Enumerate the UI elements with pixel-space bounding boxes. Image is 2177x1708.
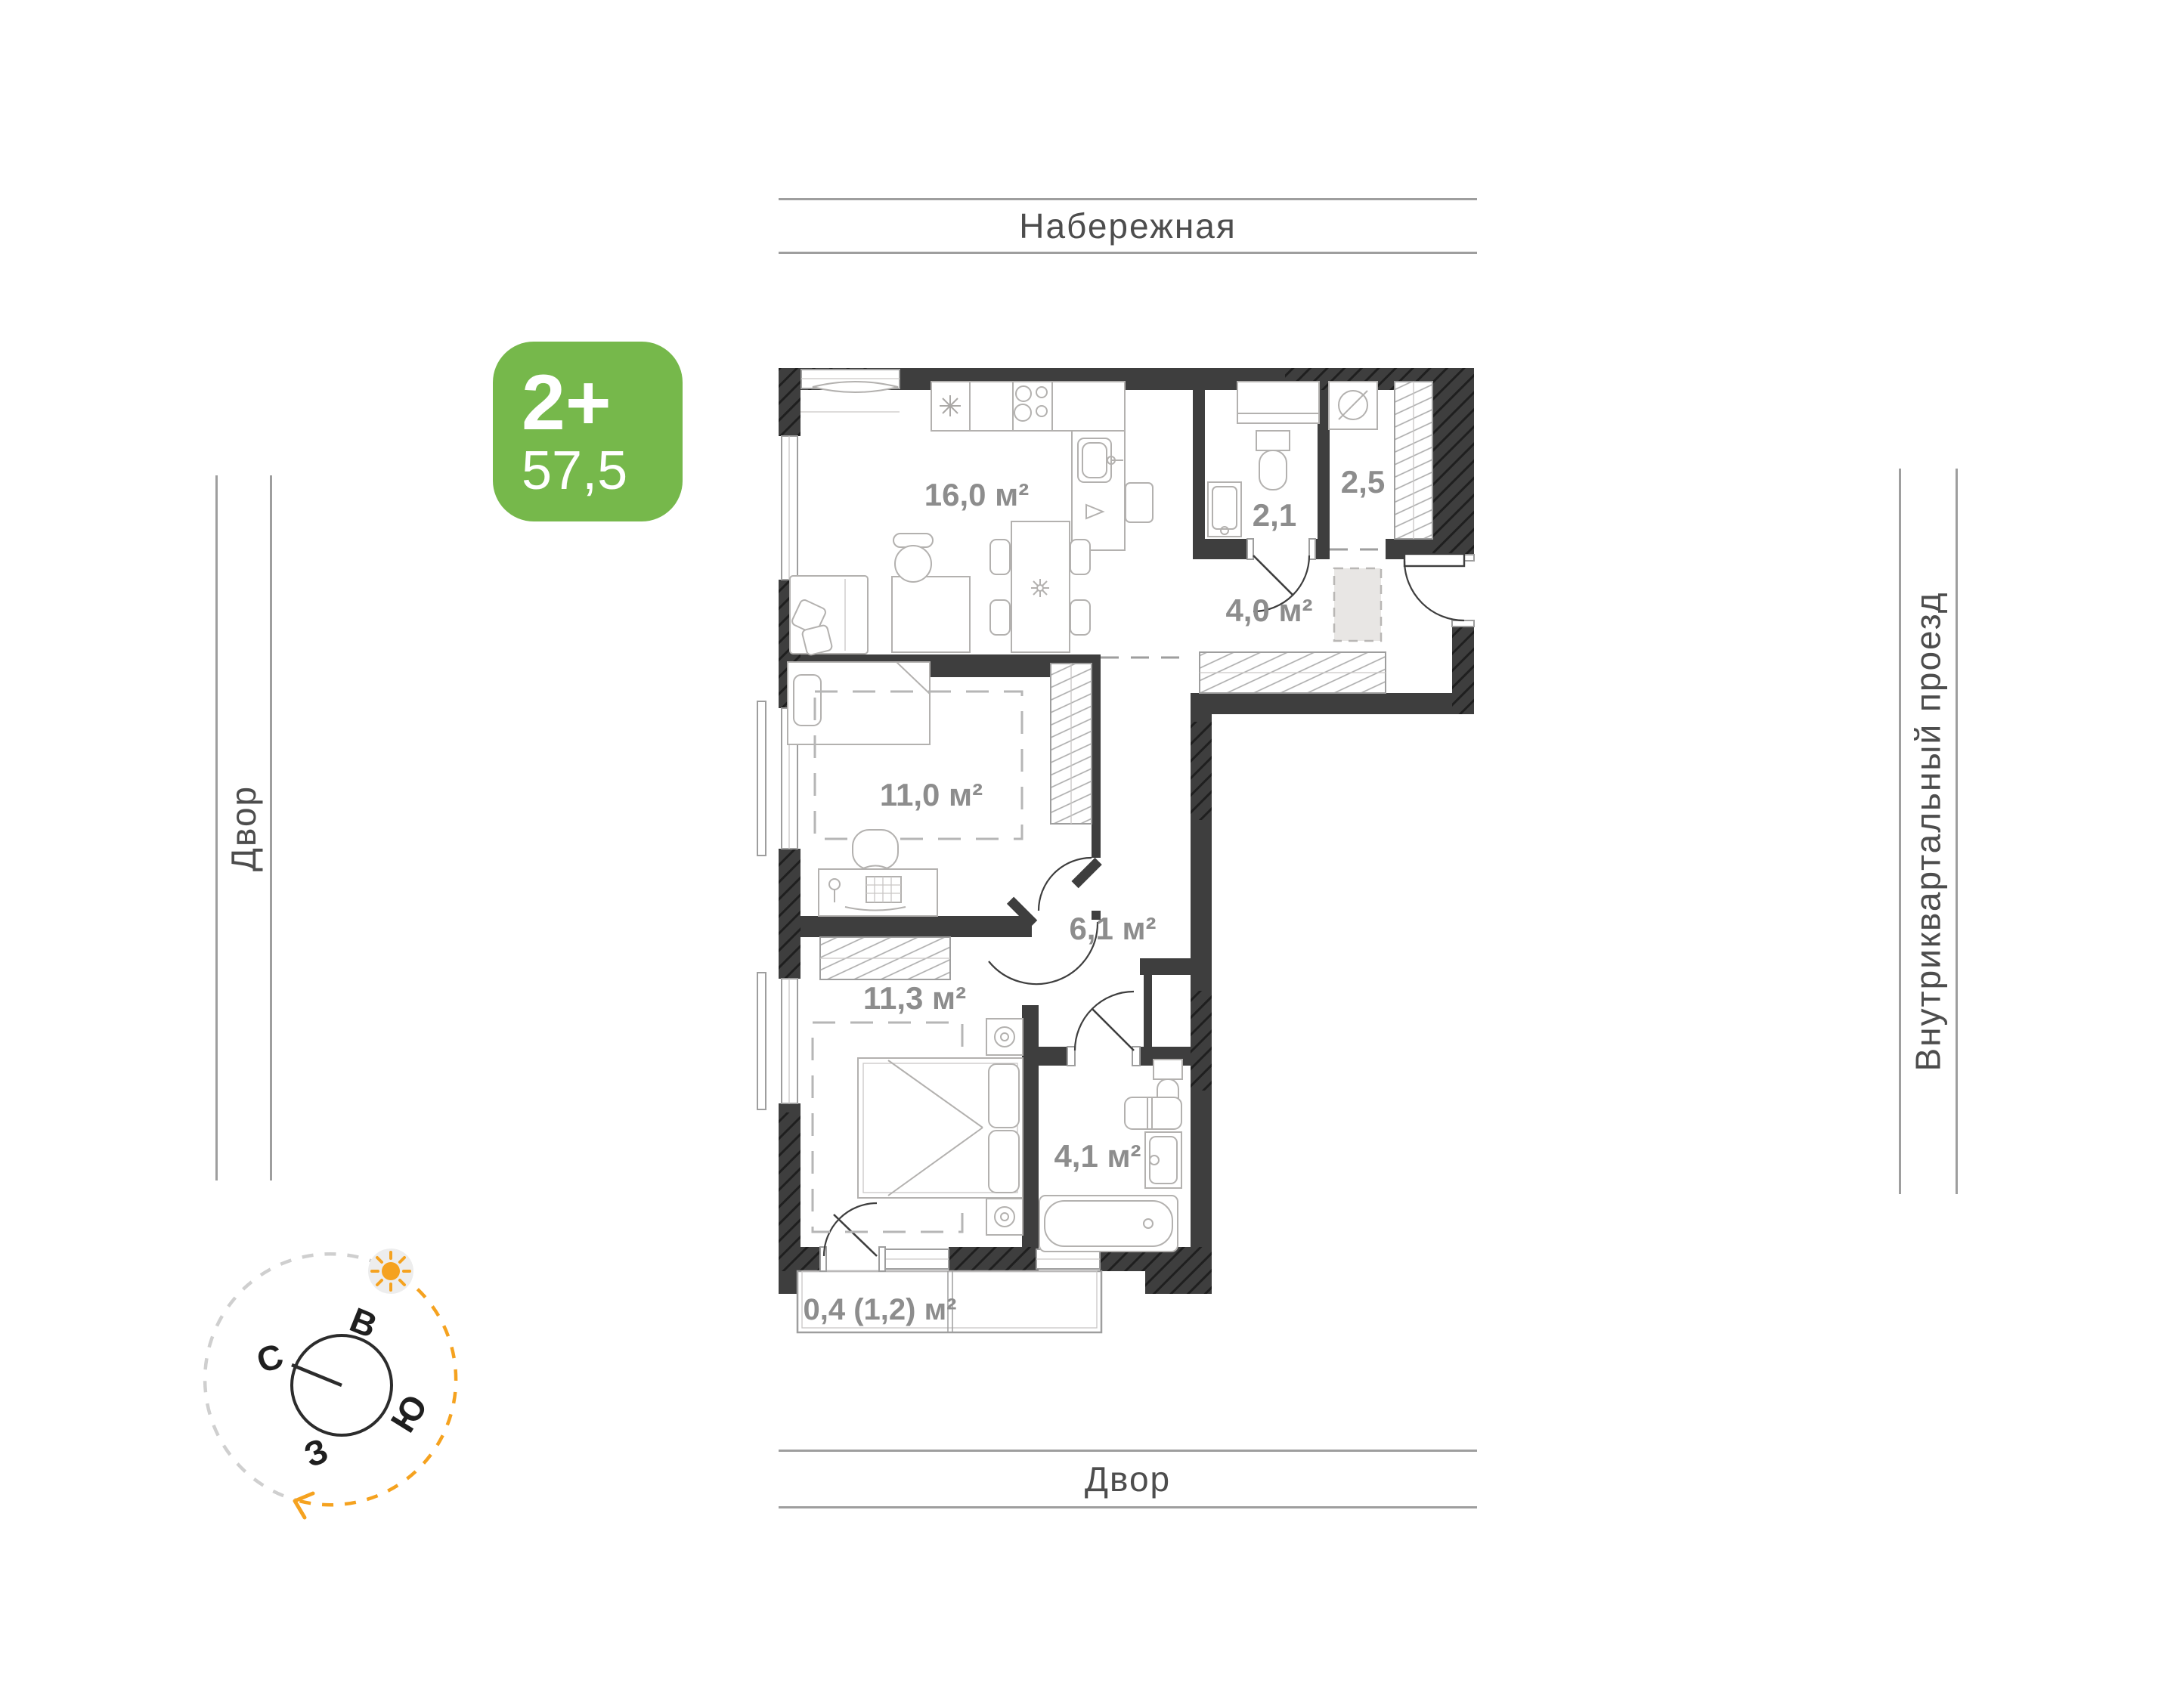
room-label-hallway-entry: 4,0 м² [1225, 593, 1312, 628]
vanity-sink [1125, 1097, 1181, 1129]
room-label-balcony: 0,4 (1,2) м² [804, 1293, 957, 1326]
street-label-top: Набережная [1019, 206, 1237, 246]
bathroom-door [1067, 992, 1140, 1066]
entry-mat [1334, 568, 1381, 641]
room-label-kitchen-living: 16,0 м² [924, 477, 1029, 512]
sun-icon [368, 1249, 413, 1294]
floor-plan: 16,0 м² 2,1 2,5 4,0 м² 11,0 м² 6,1 м² 11… [748, 355, 1489, 1368]
desk-with-chair [892, 534, 970, 652]
street-band-bottom: Двор [779, 1450, 1477, 1508]
flower-icon [1031, 579, 1049, 597]
badge-area-value: 57,5 [522, 443, 683, 500]
room-label-bedroom-2: 11,3 м² [863, 980, 966, 1016]
fridge [1126, 483, 1153, 522]
nightstand [986, 1199, 1023, 1235]
bathtub [1039, 1196, 1178, 1252]
desk-workstation [819, 830, 937, 916]
compass: В С Ю З [189, 1224, 522, 1542]
compass-label-north: С [252, 1335, 288, 1381]
bedroom2-furniture [813, 1019, 1023, 1235]
washing-machine [1145, 1132, 1181, 1188]
entry-door [1404, 554, 1474, 627]
boiler [1237, 382, 1319, 423]
street-label-bottom: Двор [1085, 1459, 1171, 1499]
washbasin [1208, 482, 1241, 537]
fan-icon [1329, 382, 1377, 429]
french-balcony-rail [757, 701, 766, 856]
double-bed [858, 1058, 1023, 1198]
bedroom1-door [1039, 858, 1102, 911]
room-label-bedroom-1: 11,0 м² [880, 777, 983, 812]
street-label-left: Двор [224, 784, 265, 871]
living-furniture [790, 521, 1090, 656]
sofa [790, 576, 868, 656]
sun-path-arrow-icon [295, 1493, 313, 1518]
street-label-right: Внутриквартальный проезд [1908, 591, 1949, 1071]
street-band-right: Внутриквартальный проезд [1899, 469, 1958, 1194]
dining-set [990, 521, 1090, 652]
single-bed [788, 662, 930, 744]
apartment-type-badge: 2+ 57,5 [493, 342, 683, 521]
toilet [1256, 431, 1290, 490]
room-label-hallway-inner: 6,1 м² [1069, 911, 1156, 946]
street-band-left: Двор [215, 475, 272, 1180]
room-label-bathroom-small: 2,1 [1253, 497, 1296, 533]
compass-label-west: З [299, 1430, 333, 1474]
balcony-door [820, 1203, 885, 1271]
nightstand [986, 1019, 1023, 1055]
french-balcony-rail [757, 973, 766, 1109]
street-band-top: Набережная [779, 198, 1477, 254]
badge-rooms-label: 2+ [522, 363, 683, 443]
kitchen-sink-icon [940, 395, 961, 416]
floor-plan-page: Набережная Двор Двор Внутриквартальный п… [0, 0, 2177, 1708]
room-label-closet: 2,5 [1341, 464, 1385, 500]
room-label-bathroom-main: 4,1 м² [1054, 1138, 1141, 1174]
